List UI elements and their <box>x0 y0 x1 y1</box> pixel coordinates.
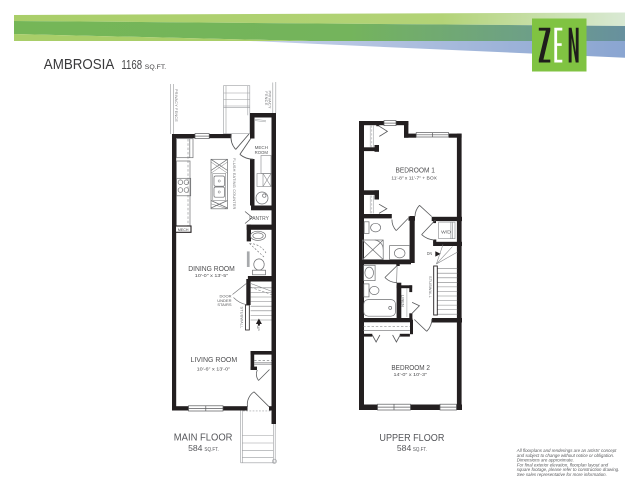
svg-text:BEDROOM 2: BEDROOM 2 <box>391 365 430 372</box>
svg-text:MAIN FLOOR: MAIN FLOOR <box>174 433 233 444</box>
svg-text:AMBROSIA: AMBROSIA <box>44 57 115 73</box>
svg-text:1168: 1168 <box>121 58 142 72</box>
svg-text:ROOM: ROOM <box>255 150 268 156</box>
svg-text:DINING ROOM: DINING ROOM <box>188 266 235 273</box>
svg-text:UPPER FLOOR: UPPER FLOOR <box>379 433 444 444</box>
svg-text:STUBWALL: STUBWALL <box>240 307 244 329</box>
svg-text:584: 584 <box>397 444 412 453</box>
svg-text:14′-0″ x 10′-3″: 14′-0″ x 10′-3″ <box>394 372 428 378</box>
svg-text:FLUSH EATING COUNTER: FLUSH EATING COUNTER <box>232 158 237 210</box>
svg-text:See sales representative for m: See sales representative for more inform… <box>517 472 607 477</box>
svg-text:PRIVACY FENCE: PRIVACY FENCE <box>174 89 179 122</box>
svg-text:SQ.FT.: SQ.FT. <box>204 447 218 453</box>
svg-text:SQ.FT.: SQ.FT. <box>413 447 427 453</box>
svg-text:11′-8″ x 11′-7″ + BOX: 11′-8″ x 11′-7″ + BOX <box>391 176 437 182</box>
svg-text:10′-0″ x 13′-5″: 10′-0″ x 13′-5″ <box>195 273 229 279</box>
svg-text:PANTRY: PANTRY <box>249 216 269 222</box>
svg-text:LIVING ROOM: LIVING ROOM <box>191 357 238 364</box>
svg-text:10′-6″ x 13′-0″: 10′-6″ x 13′-0″ <box>197 367 231 373</box>
svg-text:DN: DN <box>427 251 432 256</box>
svg-text:UP: UP <box>256 326 260 332</box>
svg-text:SQ.FT.: SQ.FT. <box>145 64 167 71</box>
svg-text:W/D: W/D <box>441 230 451 235</box>
svg-text:STAIRS: STAIRS <box>217 302 231 307</box>
svg-text:BEDROOM 1: BEDROOM 1 <box>396 168 435 175</box>
svg-text:584: 584 <box>188 444 203 453</box>
svg-text:LINEN: LINEN <box>401 295 405 307</box>
svg-text:MECH: MECH <box>178 228 189 232</box>
svg-text:PRIVACYFENCE: PRIVACYFENCE <box>264 91 272 109</box>
svg-text:STUBWALL: STUBWALL <box>428 276 432 298</box>
